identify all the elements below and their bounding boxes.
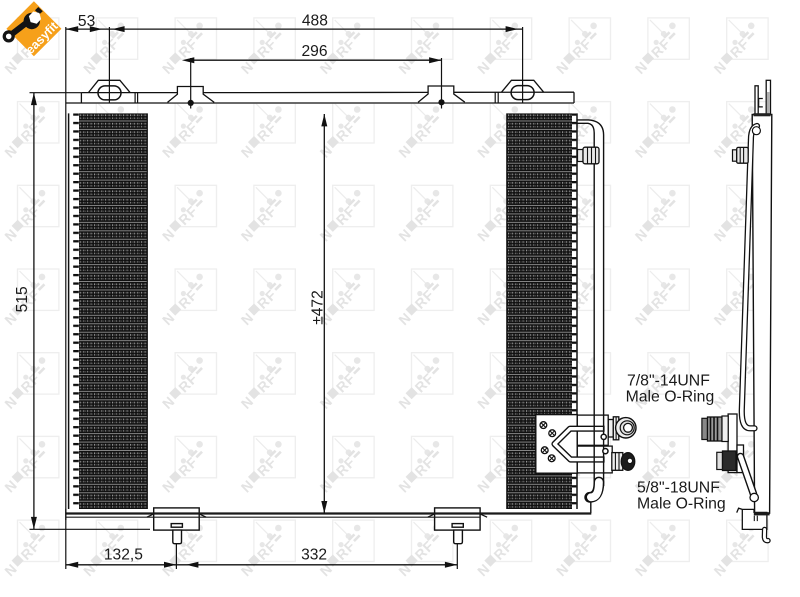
svg-text:±472: ±472 [309,290,326,325]
svg-text:332: 332 [301,546,327,563]
svg-text:7/8"-14UNF: 7/8"-14UNF [627,373,710,390]
svg-text:Male O-Ring: Male O-Ring [626,389,715,406]
svg-text:132,5: 132,5 [104,546,143,563]
svg-text:Male O-Ring: Male O-Ring [637,496,726,513]
svg-text:515: 515 [14,286,31,312]
svg-text:53: 53 [78,13,95,30]
svg-text:488: 488 [302,13,328,30]
svg-text:5/8"-18UNF: 5/8"-18UNF [637,480,720,497]
svg-text:296: 296 [301,43,327,60]
